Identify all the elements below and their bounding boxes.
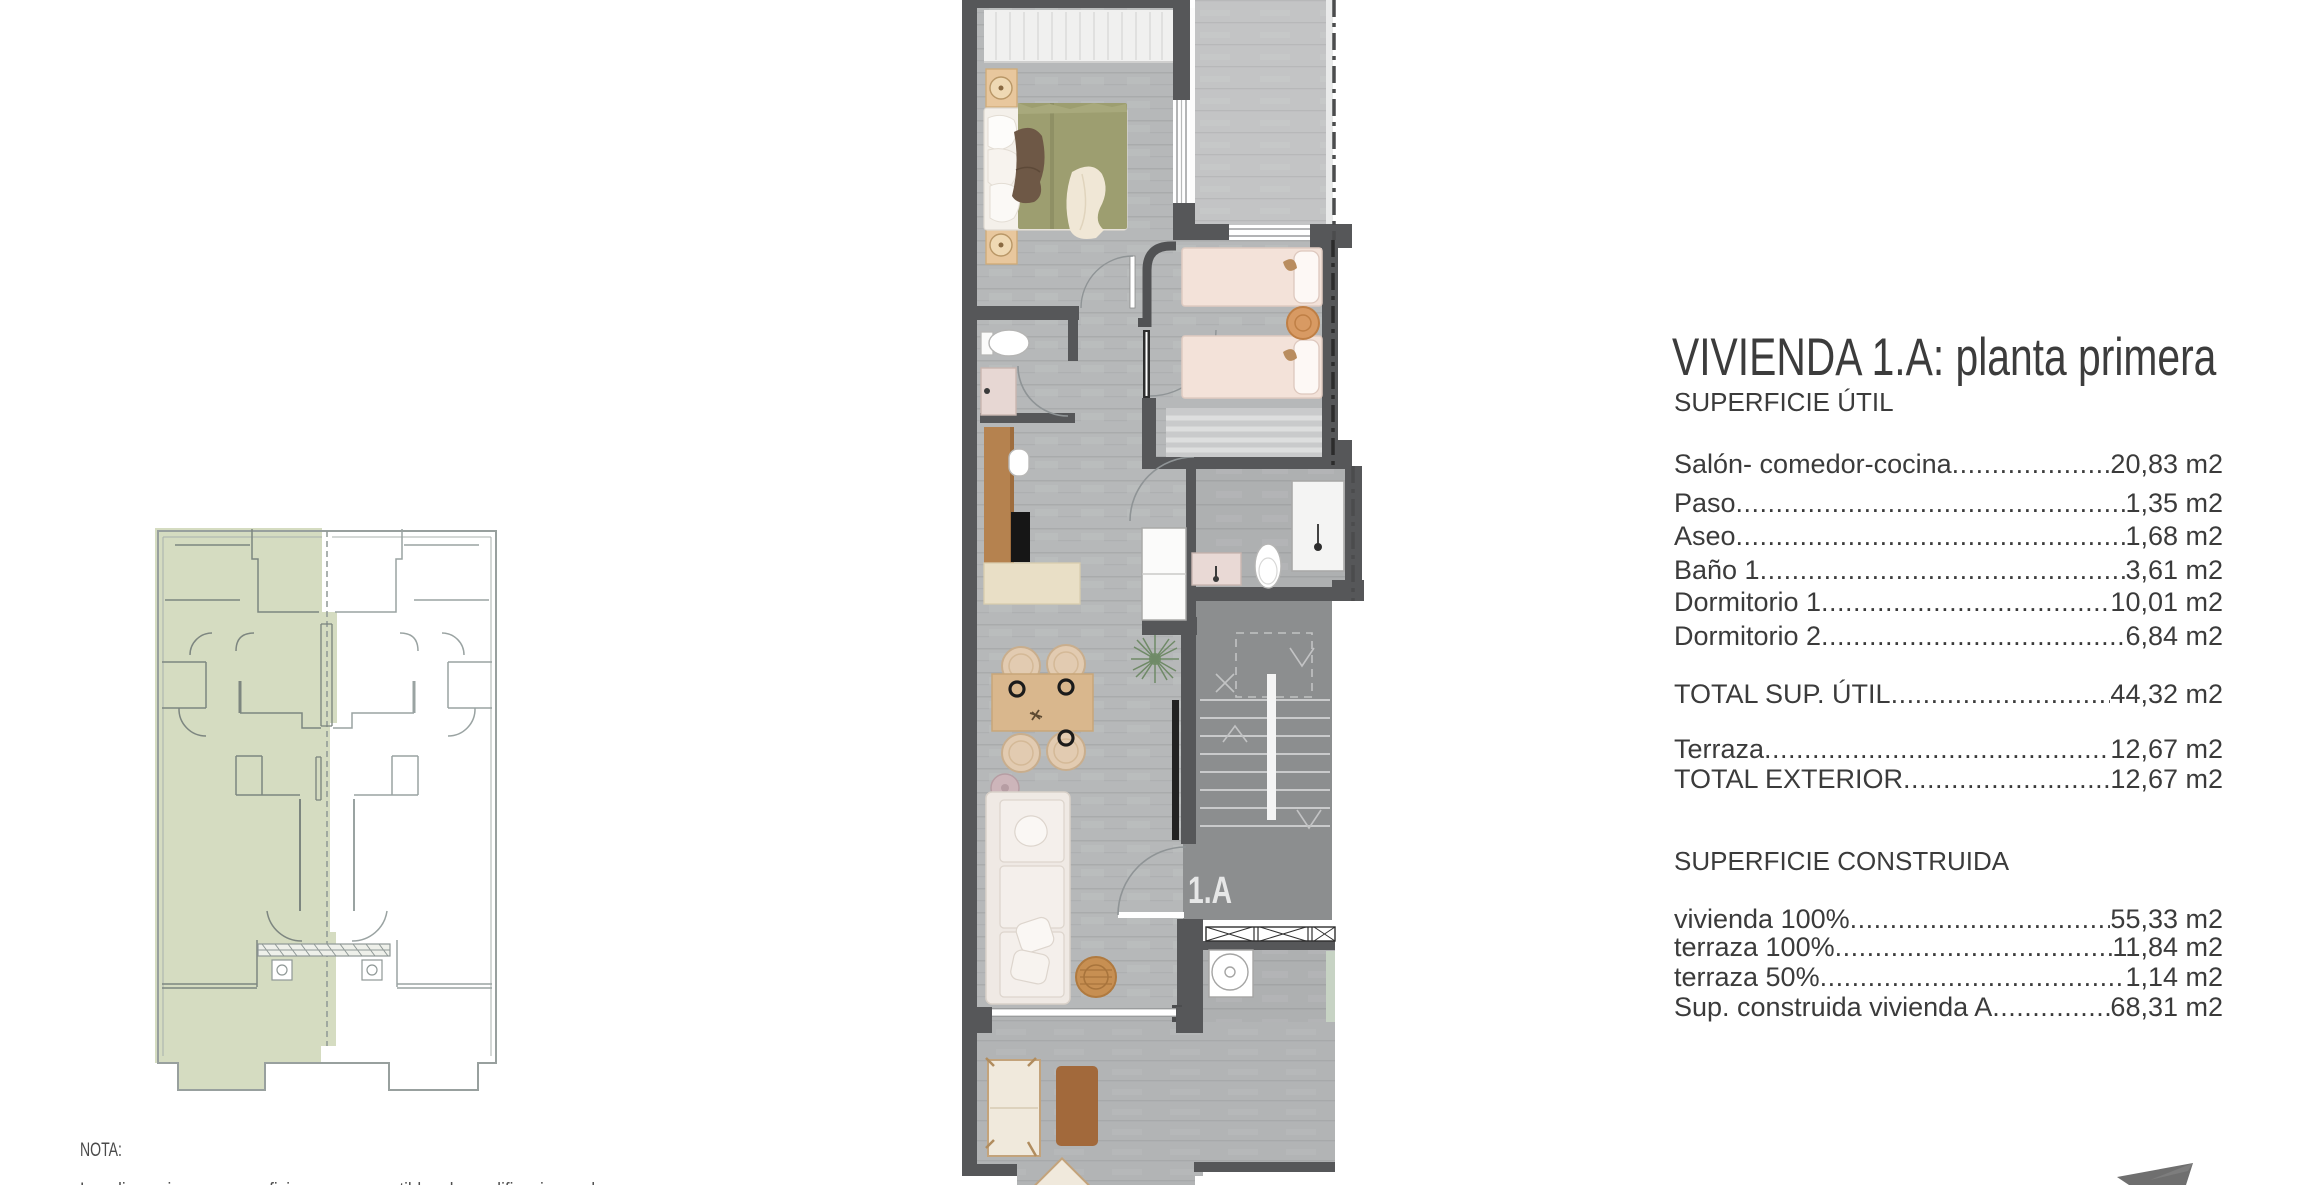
svg-text:1.A: 1.A <box>1188 870 1232 912</box>
